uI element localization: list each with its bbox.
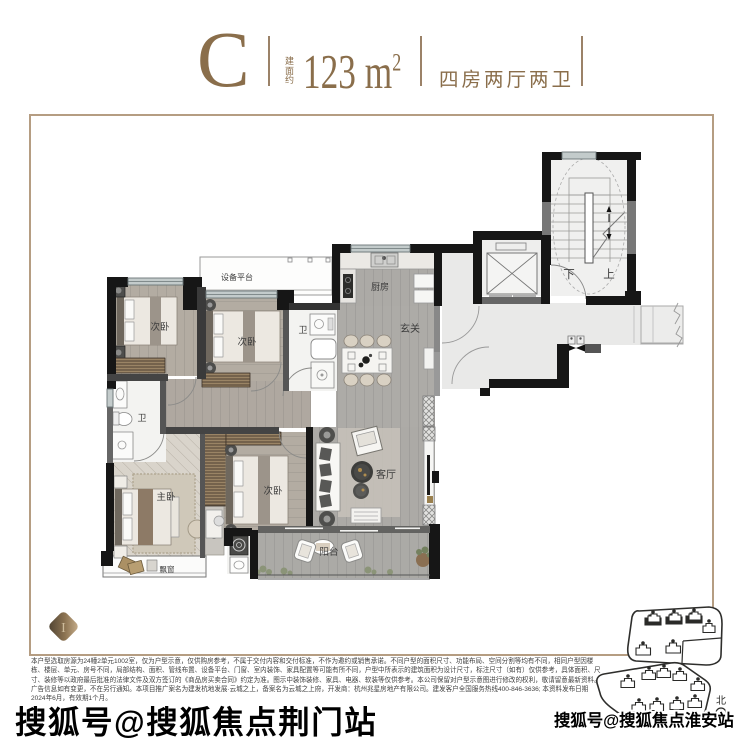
svg-text:飘窗: 飘窗 [160, 564, 175, 574]
svg-text:搜狐号@搜狐焦点荆门站: 搜狐号@搜狐焦点荆门站 [15, 704, 377, 739]
svg-text:上: 上 [603, 268, 615, 281]
svg-text:卫: 卫 [298, 325, 307, 335]
svg-text:次卧: 次卧 [237, 336, 257, 348]
svg-text:北: 北 [716, 695, 726, 707]
svg-text:主卧: 主卧 [156, 491, 176, 503]
svg-text:次卧: 次卧 [263, 485, 283, 497]
svg-text:下: 下 [563, 269, 575, 281]
svg-text:设备平台: 设备平台 [221, 272, 253, 282]
svg-text:卫: 卫 [137, 413, 146, 423]
svg-text:厨房: 厨房 [371, 281, 389, 292]
svg-text:阳台: 阳台 [319, 546, 338, 558]
svg-text:搜狐号@搜狐焦点淮安站: 搜狐号@搜狐焦点淮安站 [554, 711, 734, 730]
svg-text:客厅: 客厅 [376, 468, 396, 481]
svg-text:次卧: 次卧 [150, 321, 170, 333]
svg-text:玄关: 玄关 [400, 322, 420, 335]
